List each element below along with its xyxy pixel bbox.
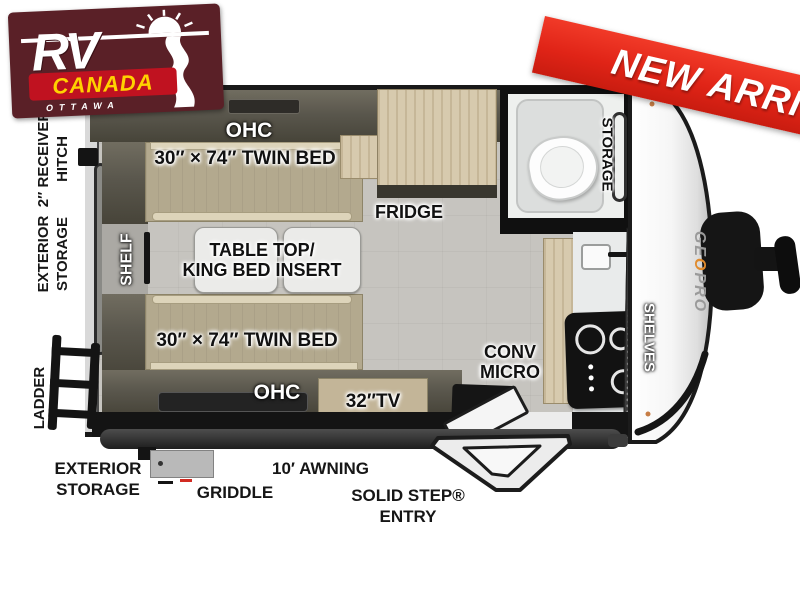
label-table-top-line1: TABLE TOP/ <box>162 240 362 260</box>
knob-icon <box>589 386 594 391</box>
label-exterior-storage-bottom: EXTERIOR STORAGE <box>48 458 148 501</box>
griddle-knob <box>158 461 163 466</box>
label-ohc-top: OHC <box>214 118 284 144</box>
roof-vent-icon <box>228 99 300 114</box>
label-fridge: FRIDGE <box>368 201 450 223</box>
label-twin-bed-bottom: 30″ × 74″ TWIN BED <box>137 328 357 354</box>
label-tv: 32″TV <box>327 390 419 414</box>
ladder-icon <box>48 335 103 433</box>
fridge-shadow <box>377 185 497 198</box>
label-table-top: TABLE TOP/ KING BED INSERT <box>162 240 362 280</box>
label-solid-step-line2: ENTRY <box>348 506 468 527</box>
label-ext-storage-left-line1: EXTERIOR <box>35 199 54 309</box>
knob-icon <box>588 364 593 369</box>
dealer-logo: RV CANADA OTTAWA <box>8 3 224 118</box>
fridge-cabinet <box>377 89 497 189</box>
label-shelves: SHELVES <box>640 282 657 394</box>
label-griddle: GRIDDLE <box>190 483 280 503</box>
label-ladder: LADDER <box>31 353 49 443</box>
label-exterior-storage-left: EXTERIOR STORAGE <box>35 199 71 309</box>
label-ext-storage-left-line2: STORAGE <box>54 199 73 309</box>
front-bracket-icon <box>78 148 98 166</box>
logo-sun-icon <box>136 9 193 34</box>
brand-part3: PRO <box>690 272 708 313</box>
label-ext-storage-bottom-line2: STORAGE <box>48 479 148 500</box>
twin-bed-top-cushions <box>152 212 352 221</box>
griddle-icon <box>150 450 214 478</box>
label-table-top-line2: KING BED INSERT <box>162 260 362 280</box>
label-conv-micro: CONV MICRO <box>460 342 560 382</box>
geo-pro-brand: GEO PRO <box>689 207 709 337</box>
label-shelf: SHELF <box>119 225 136 295</box>
shelf-icon <box>144 232 150 284</box>
knob-icon <box>589 375 594 380</box>
label-ext-storage-bottom-line1: EXTERIOR <box>48 458 148 479</box>
label-solid-step-entry: SOLID STEP® ENTRY <box>348 485 468 528</box>
awning-endcap <box>608 434 628 447</box>
griddle-mark-red <box>180 479 192 482</box>
brand-part2: O <box>690 258 708 272</box>
label-conv-line2: MICRO <box>460 362 560 382</box>
label-solid-step-line1: SOLID STEP® <box>348 485 468 506</box>
listing-image: OHC 30″ × 74″ TWIN BED SHELF TABLE TOP/ … <box>0 0 800 600</box>
label-awning: 10′ AWNING <box>268 459 373 479</box>
label-twin-bed-top: 30″ × 74″ TWIN BED <box>135 146 355 172</box>
griddle-mark <box>158 481 173 484</box>
label-ohc-bottom: OHC <box>242 380 312 406</box>
twin-bed-bottom-cushions <box>152 295 352 304</box>
brand-part1: GE <box>690 231 708 258</box>
label-bath-storage: STORAGE <box>598 109 615 201</box>
twin-bed-bottom-footrail <box>150 362 358 370</box>
label-conv-line1: CONV <box>460 342 560 362</box>
